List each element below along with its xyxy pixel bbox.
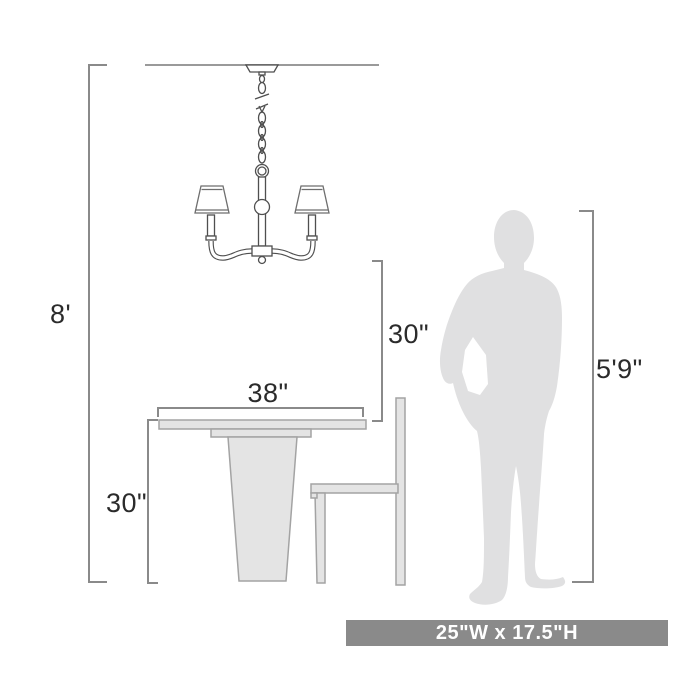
chair-seat-step bbox=[311, 493, 317, 498]
chair-seat bbox=[311, 484, 398, 493]
chandelier-chain bbox=[255, 76, 269, 164]
dining-table bbox=[159, 420, 366, 581]
person-silhouette bbox=[440, 210, 565, 605]
candle-right bbox=[309, 215, 316, 236]
diagram-artwork bbox=[0, 0, 700, 700]
table-top bbox=[159, 420, 366, 429]
chandelier bbox=[195, 65, 329, 264]
table-width-bracket bbox=[158, 408, 363, 417]
table-height-bracket bbox=[148, 420, 158, 583]
candle-cup-right bbox=[307, 236, 317, 240]
clearance-bracket bbox=[372, 261, 382, 421]
ceiling-height-bracket bbox=[89, 65, 107, 582]
dimension-diagram: 8' 30" 38" 30" 5'9" 25"W x 17.5"H bbox=[0, 0, 700, 700]
clearance-label: 30" bbox=[388, 321, 429, 348]
chandelier-hub bbox=[252, 246, 272, 256]
size-banner: 25"W x 17.5"H bbox=[346, 620, 668, 646]
chair-front-leg bbox=[315, 493, 325, 583]
chandelier-ball bbox=[255, 200, 270, 215]
chandelier-canopy bbox=[246, 65, 278, 72]
table-height-label: 30" bbox=[106, 490, 147, 517]
table-pedestal bbox=[228, 437, 297, 581]
person-height-bracket bbox=[572, 211, 593, 582]
table-width-label: 38" bbox=[240, 380, 296, 407]
size-banner-text: 25"W x 17.5"H bbox=[436, 622, 578, 645]
ceiling-height-label: 8' bbox=[50, 301, 71, 328]
candle-cup-left bbox=[206, 236, 216, 240]
candle-left bbox=[208, 215, 215, 236]
chandelier-finial bbox=[259, 257, 266, 264]
person-height-label: 5'9" bbox=[596, 356, 643, 383]
table-apron bbox=[211, 429, 311, 437]
